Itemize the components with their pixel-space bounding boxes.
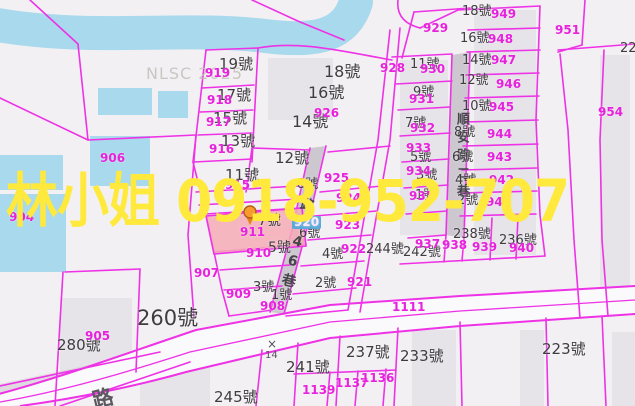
parcel-id-label: 937 [415, 238, 440, 250]
parcel-id-label: 932 [410, 122, 435, 134]
parcel-address-label: 5號 [268, 241, 291, 255]
parcel-address-label: 2號 [315, 277, 336, 290]
parcel-id-label: 910 [246, 247, 271, 259]
parcel-address-label: 16號 [308, 85, 344, 101]
parcel-id-label: 948 [488, 33, 513, 45]
parcel-address-label: 8號 [454, 126, 475, 139]
parcel-address-label: 18號 [324, 64, 360, 80]
survey-marker-value: 14 [265, 351, 278, 361]
parcel-id-label: 954 [598, 106, 623, 118]
parcel-address-label: 12號 [459, 74, 489, 87]
parcel-id-label: 947 [491, 54, 516, 66]
parcel-address-label: 233號 [400, 349, 444, 364]
parcel-id-label: 919 [205, 67, 230, 79]
parcel-id-label: 921 [347, 276, 372, 288]
parcel-address-label: 237號 [346, 345, 390, 360]
parcel-id-label: 1111 [392, 301, 425, 313]
parcel-id-label: 1139 [302, 384, 335, 396]
parcel-id-label: 951 [555, 24, 580, 36]
parcel-id-label: 945 [489, 101, 514, 113]
parcel-id-label: 938 [442, 239, 467, 251]
parcel-id-label: 922 [341, 243, 366, 255]
parcel-id-label: 905 [85, 330, 110, 342]
parcel-id-label: 908 [260, 300, 285, 312]
parcel-id-label: 931 [409, 93, 434, 105]
parcel-id-label: 926 [314, 107, 339, 119]
river [0, 2, 356, 38]
parcel-id-label: 928 [380, 62, 405, 74]
parcel-id-label: 1136 [361, 372, 394, 384]
agent-contact-watermark: 林小姐 0918-952-707 [6, 154, 635, 238]
parcel-address-label: 241號 [286, 360, 330, 375]
parcel-id-label: 944 [487, 128, 512, 140]
survey-marker-icon: × [267, 338, 277, 350]
parcel-id-label: 907 [194, 267, 219, 279]
parcel-address-label: 22 [620, 42, 635, 55]
parcel-id-label: 946 [496, 78, 521, 90]
parcel-id-label: 909 [226, 288, 251, 300]
parcel-address-label: 260號 [137, 308, 198, 329]
cadastral-map-canvas[interactable]: NLSC 2025 路246巷 順安路二巷 路 × 14 19號17號15號13… [0, 0, 635, 406]
parcel-id-label: 933 [406, 142, 431, 154]
parcel-id-label: 918 [207, 94, 232, 106]
parcel-id-label: 949 [491, 8, 516, 20]
parcel-address-label: 16號 [460, 32, 490, 45]
parcel-address-label: 244號 [366, 243, 404, 256]
parcel-id-label: 917 [206, 116, 231, 128]
parcel-address-label: 14號 [462, 54, 492, 67]
parcel-id-label: 929 [423, 22, 448, 34]
parcel-address-label: 245號 [214, 390, 258, 405]
parcel-id-label: 940 [509, 242, 534, 254]
parcel-address-label: 223號 [542, 342, 586, 357]
parcel-id-label: 930 [420, 63, 445, 75]
parcel-address-label: 10號 [462, 100, 492, 113]
parcel-id-label: 939 [472, 241, 497, 253]
parcel-address-label: 18號 [462, 5, 492, 18]
